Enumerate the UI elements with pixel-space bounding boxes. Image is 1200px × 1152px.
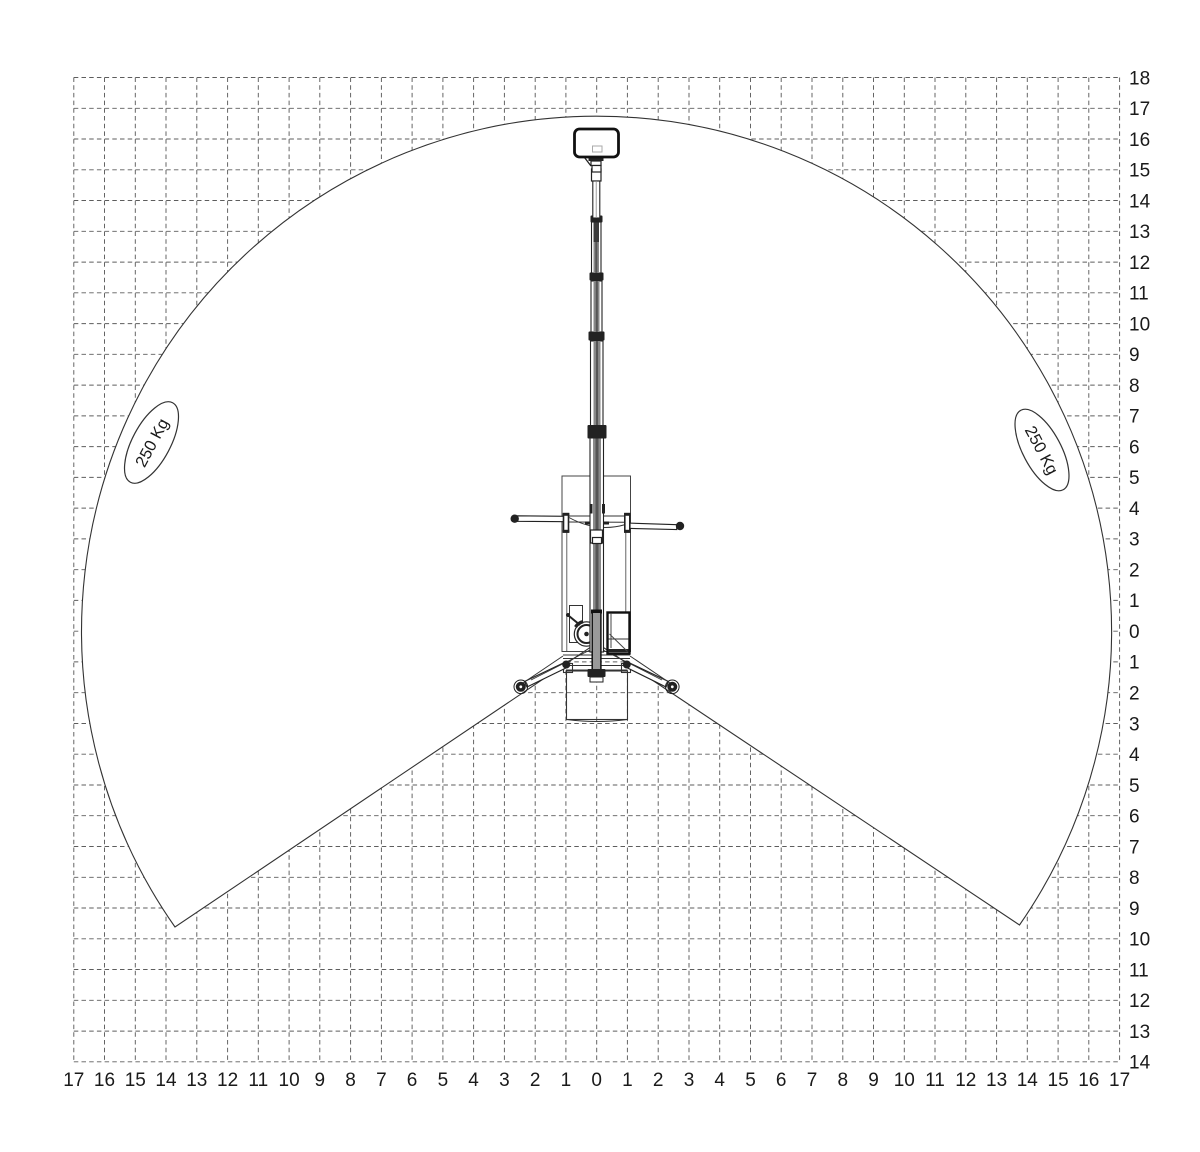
svg-text:11: 11 [925,1070,945,1091]
svg-text:1: 1 [1129,653,1140,674]
svg-text:5: 5 [438,1070,449,1091]
svg-text:4: 4 [1129,745,1140,766]
svg-text:0: 0 [591,1070,602,1091]
svg-text:17: 17 [1129,99,1150,120]
svg-text:8: 8 [345,1070,356,1091]
svg-text:1: 1 [561,1070,572,1091]
svg-text:12: 12 [1129,253,1150,274]
svg-text:5: 5 [745,1070,756,1091]
svg-text:10: 10 [1129,314,1150,335]
svg-text:7: 7 [1129,407,1140,428]
svg-text:15: 15 [1048,1070,1069,1091]
svg-text:14: 14 [1129,191,1151,212]
svg-text:4: 4 [1129,499,1140,520]
svg-text:2: 2 [1129,684,1140,705]
svg-text:17: 17 [63,1070,84,1091]
svg-text:9: 9 [1129,899,1140,920]
svg-text:17: 17 [1109,1070,1130,1091]
svg-text:10: 10 [894,1070,915,1091]
svg-text:9: 9 [1129,345,1140,366]
svg-text:13: 13 [186,1070,207,1091]
svg-text:1: 1 [1129,591,1140,612]
svg-text:12: 12 [1129,991,1150,1012]
svg-text:5: 5 [1129,776,1140,797]
svg-text:16: 16 [1129,130,1150,151]
svg-text:3: 3 [499,1070,510,1091]
svg-text:16: 16 [94,1070,115,1091]
svg-text:10: 10 [1129,930,1150,951]
svg-text:14: 14 [1129,1053,1151,1074]
svg-text:10: 10 [279,1070,300,1091]
svg-text:8: 8 [1129,376,1140,397]
svg-text:5: 5 [1129,468,1140,489]
svg-text:3: 3 [1129,530,1140,551]
svg-text:7: 7 [1129,837,1140,858]
svg-text:8: 8 [838,1070,849,1091]
svg-text:9: 9 [868,1070,879,1091]
svg-text:18: 18 [1129,68,1150,89]
svg-text:13: 13 [1129,222,1150,243]
svg-text:12: 12 [955,1070,976,1091]
svg-text:6: 6 [776,1070,787,1091]
svg-text:2: 2 [1129,561,1140,582]
svg-text:6: 6 [1129,807,1140,828]
svg-text:11: 11 [1129,960,1149,981]
svg-text:7: 7 [807,1070,818,1091]
svg-text:11: 11 [248,1070,268,1091]
svg-text:13: 13 [1129,1022,1150,1043]
svg-text:16: 16 [1078,1070,1099,1091]
svg-text:15: 15 [125,1070,146,1091]
svg-text:8: 8 [1129,868,1140,889]
svg-text:4: 4 [468,1070,479,1091]
svg-text:13: 13 [986,1070,1007,1091]
svg-text:14: 14 [155,1070,177,1091]
svg-text:6: 6 [1129,437,1140,458]
svg-text:0: 0 [1129,622,1140,643]
svg-text:4: 4 [714,1070,725,1091]
svg-text:3: 3 [1129,714,1140,735]
svg-text:11: 11 [1129,284,1149,305]
svg-text:7: 7 [376,1070,387,1091]
svg-text:9: 9 [315,1070,326,1091]
svg-text:15: 15 [1129,161,1150,182]
svg-text:2: 2 [530,1070,541,1091]
svg-text:6: 6 [407,1070,418,1091]
svg-text:14: 14 [1017,1070,1039,1091]
svg-text:2: 2 [653,1070,664,1091]
svg-text:1: 1 [622,1070,633,1091]
svg-text:3: 3 [684,1070,695,1091]
svg-text:12: 12 [217,1070,238,1091]
